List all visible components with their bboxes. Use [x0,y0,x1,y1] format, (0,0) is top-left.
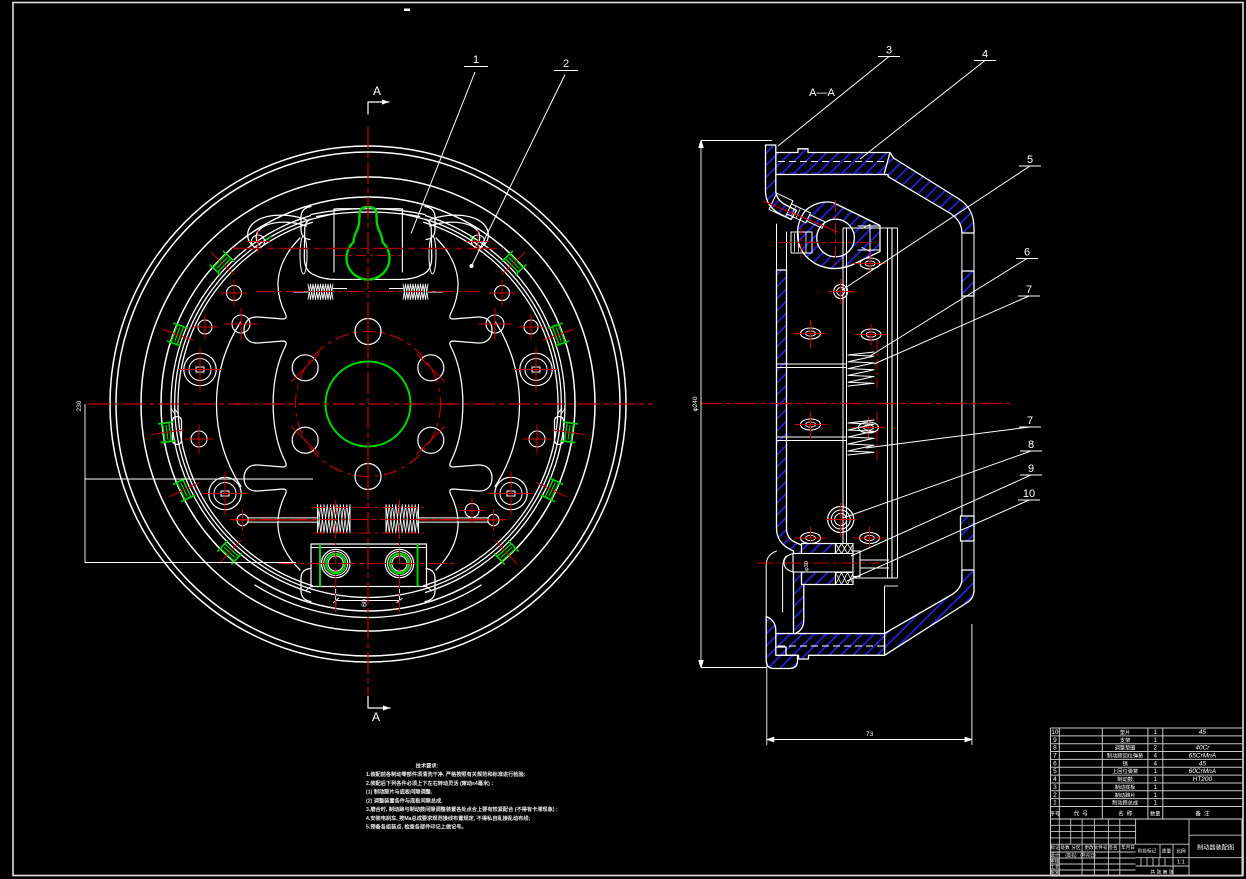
svg-text:垫片: 垫片 [1120,728,1130,736]
svg-text:1:1: 1:1 [1177,860,1185,866]
svg-text:45: 45 [1199,729,1207,736]
svg-text:分区: 分区 [1071,844,1081,851]
svg-text:代 号: 代 号 [1074,810,1089,818]
svg-text:制动蹄总成: 制动蹄总成 [1112,799,1138,807]
svg-text:标记: 标记 [1050,844,1060,851]
svg-text:230: 230 [76,400,83,411]
svg-text:7: 7 [1026,284,1032,296]
svg-text:备 注: 备 注 [1195,810,1210,818]
svg-text:2.装配后下列各件必须上下左右转动灵活 (窜动≤4毫米) :: 2.装配后下列各件必须上下左右转动灵活 (窜动≤4毫米) : [366,779,493,787]
svg-text:73: 73 [866,731,874,738]
svg-text:φ240: φ240 [692,396,699,411]
svg-text:工艺: 工艺 [1050,865,1060,870]
svg-text:制动蹄片: 制动蹄片 [1115,791,1136,799]
svg-text:阶段标记: 阶段标记 [1138,848,1157,855]
svg-text:1: 1 [473,54,479,66]
svg-text:2: 2 [563,58,569,70]
svg-text:2: 2 [1053,792,1057,799]
svg-text:φ30: φ30 [804,561,810,571]
svg-text:3.磨合时, 制动蹄与制动鼓间隙调整装置各处点合上要有较紧配: 3.磨合时, 制动蹄与制动鼓间隙调整装置各处点合上要有较紧配合 (不得有卡滞现象… [366,805,558,813]
svg-text:HT200: HT200 [1193,776,1213,783]
svg-text:60CrMnA: 60CrMnA [1189,768,1216,775]
svg-text:支架: 支架 [1120,736,1130,744]
svg-text:制动鼓: 制动鼓 [1117,775,1133,783]
svg-text:销: 销 [1122,759,1127,767]
svg-text:设计: 设计 [1050,852,1060,859]
svg-text:10: 10 [1051,729,1059,736]
svg-text:制动器装配图: 制动器装配图 [1197,844,1234,852]
svg-text:7: 7 [1027,415,1033,427]
svg-text:签名: 签名 [1108,844,1117,851]
svg-text:7: 7 [1053,753,1057,760]
svg-text:1.装配前各制动零部件须清洗干净, 严格按照有关规范和标准进: 1.装配前各制动零部件须清洗干净, 严格按照有关规范和标准进行检验; [366,770,526,778]
svg-text:制动底板: 制动底板 [1115,783,1137,791]
svg-text:数量: 数量 [1150,810,1160,818]
svg-text:8: 8 [1053,745,1057,752]
svg-text:质量: 质量 [1162,848,1172,855]
svg-text:更改文件号: 更改文件号 [1085,844,1108,851]
svg-text:10: 10 [1023,488,1035,500]
svg-text:1: 1 [1053,800,1057,807]
svg-text:(2) 调整装置各件与底板间隙总成.: (2) 调整装置各件与底板间隙总成. [366,796,443,804]
svg-text:3: 3 [886,45,892,57]
svg-text:45: 45 [1199,760,1207,767]
svg-text:名 称: 名 称 [1118,810,1133,818]
svg-text:40Cr: 40Cr [1195,745,1210,752]
svg-text:65CrMnA: 65CrMnA [1189,753,1216,760]
svg-text:5.预备各组装点, 检查各部件印记上做记号。: 5.预备各组装点, 检查各部件印记上做记号。 [366,823,467,831]
svg-text:处数: 处数 [1060,844,1070,851]
svg-text:年月日: 年月日 [1121,844,1135,851]
svg-text:审核: 审核 [1050,858,1060,865]
svg-text:序号: 序号 [1050,810,1060,818]
svg-text:9: 9 [1053,737,1057,744]
svg-text:6: 6 [1024,247,1030,259]
svg-text:4: 4 [1053,776,1057,783]
svg-text:8: 8 [1028,439,1034,451]
svg-text:(年月日): (年月日) [1080,852,1096,859]
svg-text:技术要求:: 技术要求: [416,762,439,770]
svg-text:A: A [372,710,380,724]
svg-text:调整垫圈: 调整垫圈 [1115,744,1136,752]
svg-text:制动蹄回位弹簧: 制动蹄回位弹簧 [1107,752,1143,760]
svg-text:4: 4 [982,49,988,61]
svg-text:A—A: A—A [809,87,835,99]
svg-text:共 张 第 张: 共 张 第 张 [1150,869,1173,876]
svg-text:3: 3 [1053,784,1057,791]
svg-text:9: 9 [1028,463,1034,475]
svg-text:批准: 批准 [1050,870,1060,877]
svg-text:4.安装电刹车, 按Ma总成要求规范接线布置规定, 不得私自: 4.安装电刹车, 按Ma总成要求规范接线布置规定, 不得私自乱接乱动布线; [366,814,531,822]
svg-text:比例: 比例 [1176,848,1186,855]
svg-text:A: A [373,84,381,98]
svg-text:5: 5 [1027,154,1033,166]
svg-text:上回位弹簧: 上回位弹簧 [1112,767,1138,775]
svg-text:5: 5 [1053,768,1057,775]
svg-text:6: 6 [1053,760,1057,767]
svg-text:(1) 制动蹄片与底板间隙调整.: (1) 制动蹄片与底板间隙调整. [366,788,433,796]
svg-text:(签名): (签名) [1065,852,1077,859]
